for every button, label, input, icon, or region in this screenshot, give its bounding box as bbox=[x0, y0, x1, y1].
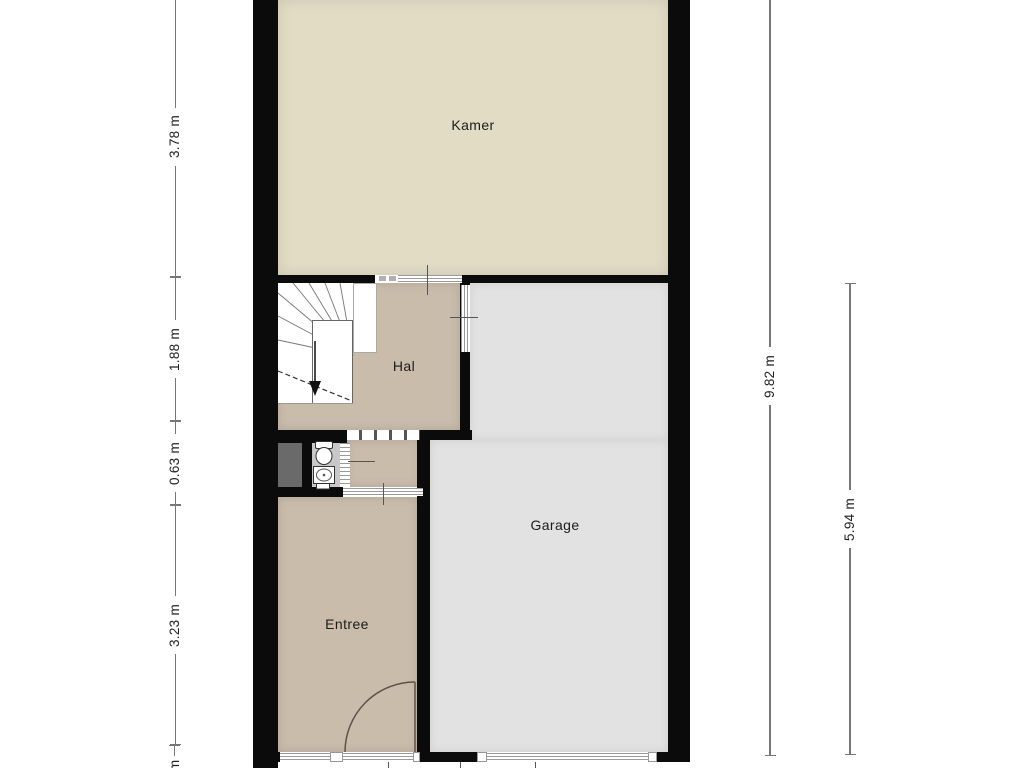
dimension-label: 3.78 m bbox=[168, 108, 182, 166]
dimension-segment-partial: m bbox=[168, 745, 182, 768]
facade-tick bbox=[535, 762, 536, 768]
stair-landing bbox=[354, 284, 377, 353]
toilet-fixtures bbox=[312, 440, 340, 490]
opening-tick bbox=[383, 483, 384, 505]
shaft bbox=[278, 443, 302, 487]
wall-bottom-mid bbox=[420, 752, 477, 762]
floor-plan: Kamer Hal Garage Entree 3.78 m 1.88 m 0.… bbox=[0, 0, 1024, 768]
dimension-line bbox=[849, 284, 851, 490]
door-track-square bbox=[389, 276, 396, 281]
dimension-segment-0-63: 0.63 m bbox=[168, 421, 182, 505]
toilet-door bbox=[340, 443, 350, 487]
hal-garage-door bbox=[461, 285, 470, 352]
entree-door-arc bbox=[343, 680, 418, 754]
room-label-garage: Garage bbox=[530, 517, 579, 533]
dimension-segment-9-82: 9.82 m bbox=[763, 0, 777, 756]
wall-kamer-south-left bbox=[278, 275, 375, 283]
dimension-line bbox=[175, 0, 176, 108]
dimension-label: 0.63 m bbox=[168, 434, 182, 492]
dimension-segment-1-88: 1.88 m bbox=[168, 277, 182, 421]
dimension-line bbox=[769, 405, 771, 755]
room-garage-floor-lower bbox=[430, 440, 668, 752]
garage-door bbox=[487, 753, 648, 761]
window-post bbox=[648, 752, 657, 762]
wall-kamer-south-right bbox=[462, 275, 668, 283]
entree-window bbox=[280, 753, 330, 761]
wall-outer-left bbox=[253, 0, 278, 768]
dimension-line bbox=[175, 492, 176, 504]
window-post bbox=[330, 752, 343, 762]
opening-tick bbox=[427, 265, 428, 295]
dimension-segment-3-78: 3.78 m bbox=[168, 0, 182, 277]
dimension-line bbox=[175, 378, 176, 420]
front-door bbox=[343, 753, 413, 761]
facade-tick bbox=[388, 762, 389, 768]
dimension-line bbox=[175, 278, 176, 320]
opening-tick bbox=[450, 317, 478, 318]
dimension-line bbox=[175, 166, 176, 277]
dimension-tick bbox=[765, 755, 776, 756]
dimension-label: 3.23 m bbox=[168, 596, 182, 654]
wall-bottom-left-corner bbox=[253, 752, 280, 762]
toilet-icon bbox=[316, 442, 333, 465]
dimension-line bbox=[769, 0, 771, 347]
hal-corridor-opening bbox=[347, 430, 420, 440]
dimension-tick bbox=[845, 754, 856, 755]
dimension-line bbox=[175, 506, 176, 596]
wall-corridor-garage bbox=[420, 430, 472, 440]
room-kamer-floor bbox=[278, 0, 668, 275]
room-label-hal: Hal bbox=[393, 358, 415, 374]
wall-bottom-right-corner bbox=[657, 752, 690, 762]
window-post bbox=[477, 752, 487, 762]
room-label-kamer: Kamer bbox=[451, 117, 494, 133]
dimension-segment-3-23: 3.23 m bbox=[168, 505, 182, 745]
dimension-label: m bbox=[167, 760, 182, 768]
dimension-segment-5-94: 5.94 m bbox=[843, 283, 857, 755]
opening-tick bbox=[348, 461, 375, 462]
kamer-hal-glass-panel bbox=[398, 275, 462, 283]
dimension-label: 5.94 m bbox=[843, 490, 857, 548]
dimension-label: 9.82 m bbox=[763, 347, 777, 405]
stairs bbox=[278, 283, 378, 404]
dimension-line bbox=[174, 746, 175, 756]
dimension-line bbox=[175, 422, 176, 434]
facade-tick bbox=[460, 762, 461, 768]
door-track-square bbox=[379, 276, 386, 281]
room-garage-floor-upper bbox=[470, 283, 668, 440]
room-label-entree: Entree bbox=[325, 616, 369, 632]
dimension-line bbox=[175, 654, 176, 744]
stair-lower-flight bbox=[313, 321, 353, 404]
dimension-label: 1.88 m bbox=[168, 320, 182, 378]
wall-outer-right bbox=[668, 0, 690, 762]
room-corridor-floor bbox=[347, 440, 420, 487]
sink-icon bbox=[314, 467, 335, 490]
dimension-line bbox=[849, 548, 851, 754]
